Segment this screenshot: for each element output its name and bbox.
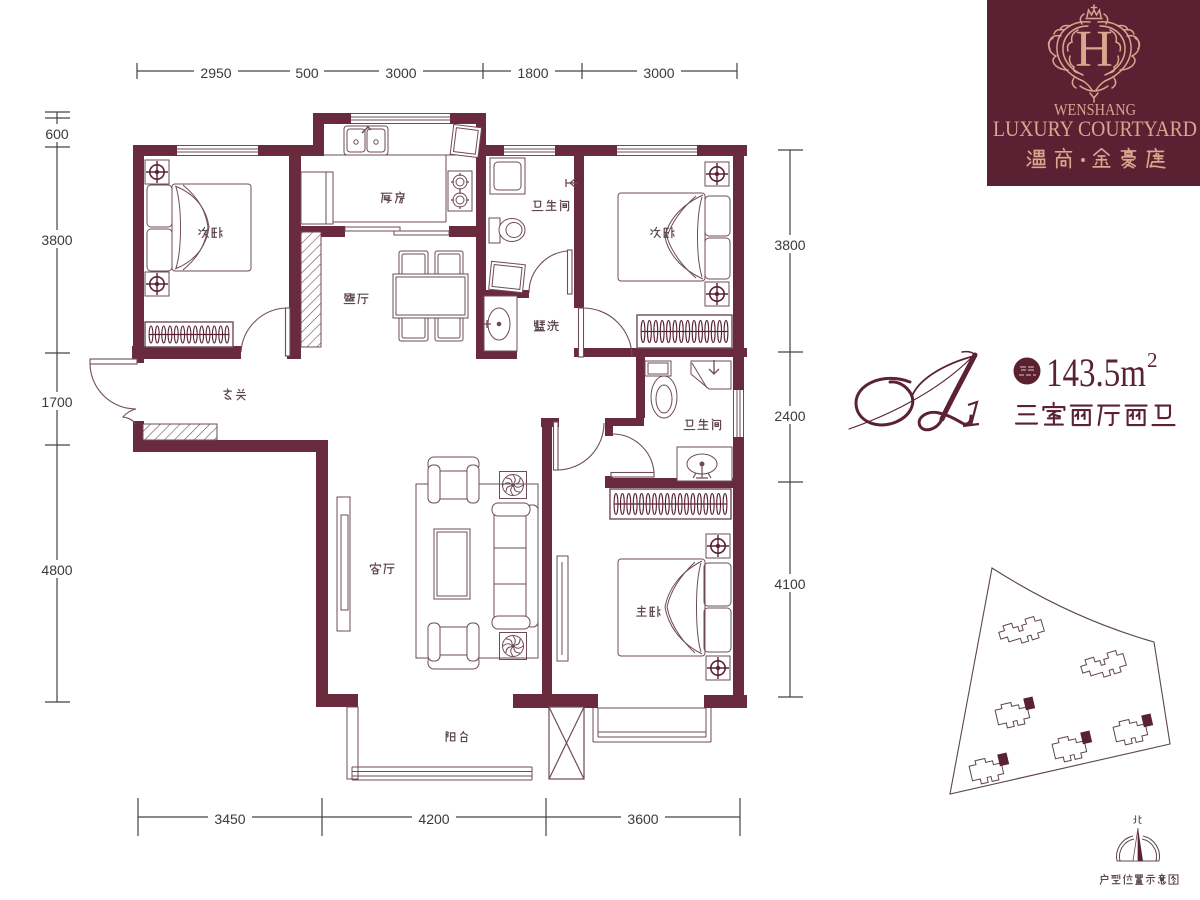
svg-text:3000: 3000	[385, 65, 416, 81]
svg-text:2: 2	[1147, 348, 1158, 372]
svg-text:H: H	[1075, 21, 1113, 78]
svg-text:143.5m: 143.5m	[1046, 350, 1146, 395]
svg-text:1700: 1700	[41, 394, 72, 410]
svg-text:500: 500	[295, 65, 319, 81]
svg-text:3600: 3600	[627, 811, 658, 827]
svg-text:2950: 2950	[200, 65, 231, 81]
svg-text:LUXURY COURTYARD: LUXURY COURTYARD	[993, 116, 1197, 141]
svg-text:4100: 4100	[774, 576, 805, 592]
svg-text:600: 600	[45, 126, 69, 142]
svg-text:3800: 3800	[774, 237, 805, 253]
svg-text:4200: 4200	[418, 811, 449, 827]
svg-text:3800: 3800	[41, 232, 72, 248]
svg-text:2400: 2400	[774, 408, 805, 424]
svg-text:1800: 1800	[517, 65, 548, 81]
svg-text:3450: 3450	[214, 811, 245, 827]
svg-text:4800: 4800	[41, 562, 72, 578]
svg-text:3000: 3000	[643, 65, 674, 81]
